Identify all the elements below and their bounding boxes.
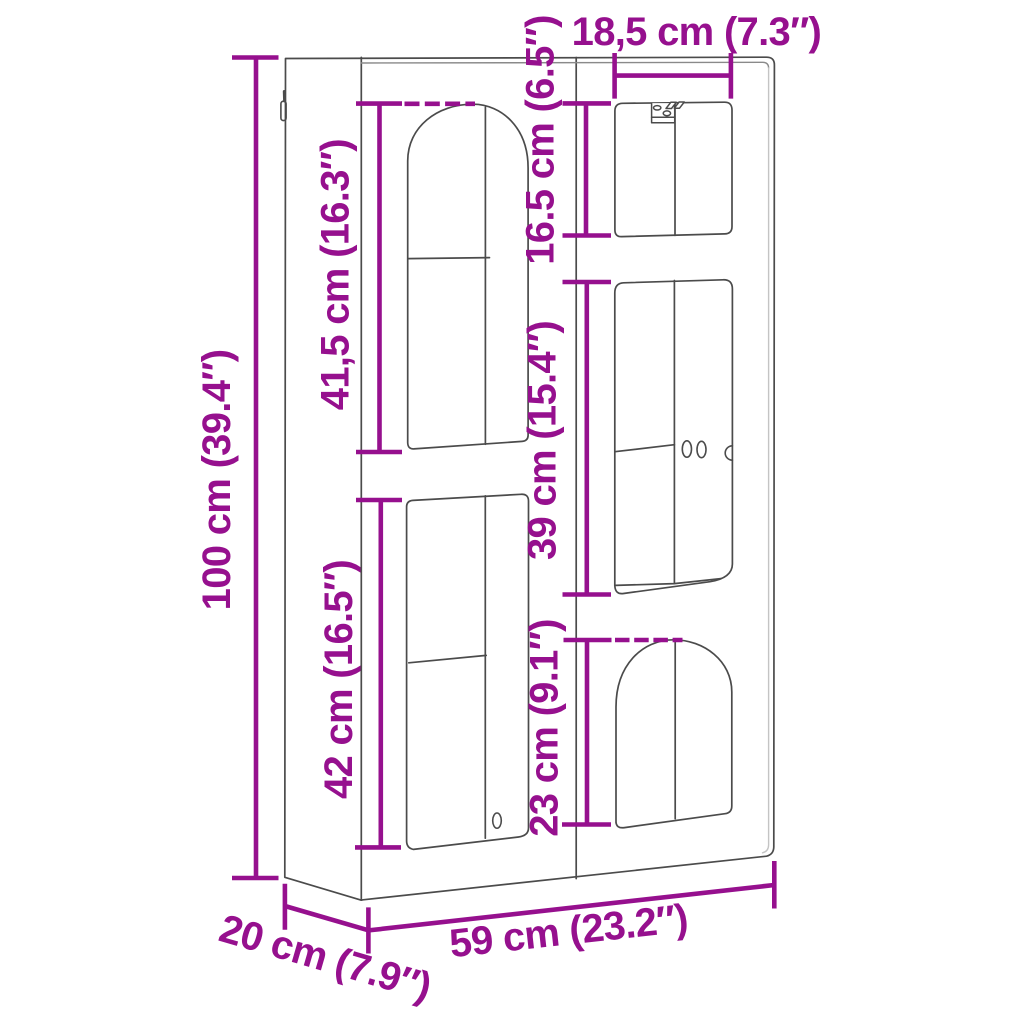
svg-text:42 cm (16.5″): 42 cm (16.5″) xyxy=(317,560,361,799)
svg-text:23 cm (9.1″): 23 cm (9.1″) xyxy=(523,619,567,837)
svg-text:41,5 cm (16.3″): 41,5 cm (16.3″) xyxy=(313,139,357,410)
svg-text:18,5 cm (7.3″): 18,5 cm (7.3″) xyxy=(572,10,822,54)
svg-text:20 cm (7.9″): 20 cm (7.9″) xyxy=(215,907,436,1010)
svg-text:16.5 cm (6.5″): 16.5 cm (6.5″) xyxy=(519,15,563,265)
svg-text:39 cm (15.4″): 39 cm (15.4″) xyxy=(521,321,565,560)
svg-text:100 cm (39.4″): 100 cm (39.4″) xyxy=(195,350,239,611)
